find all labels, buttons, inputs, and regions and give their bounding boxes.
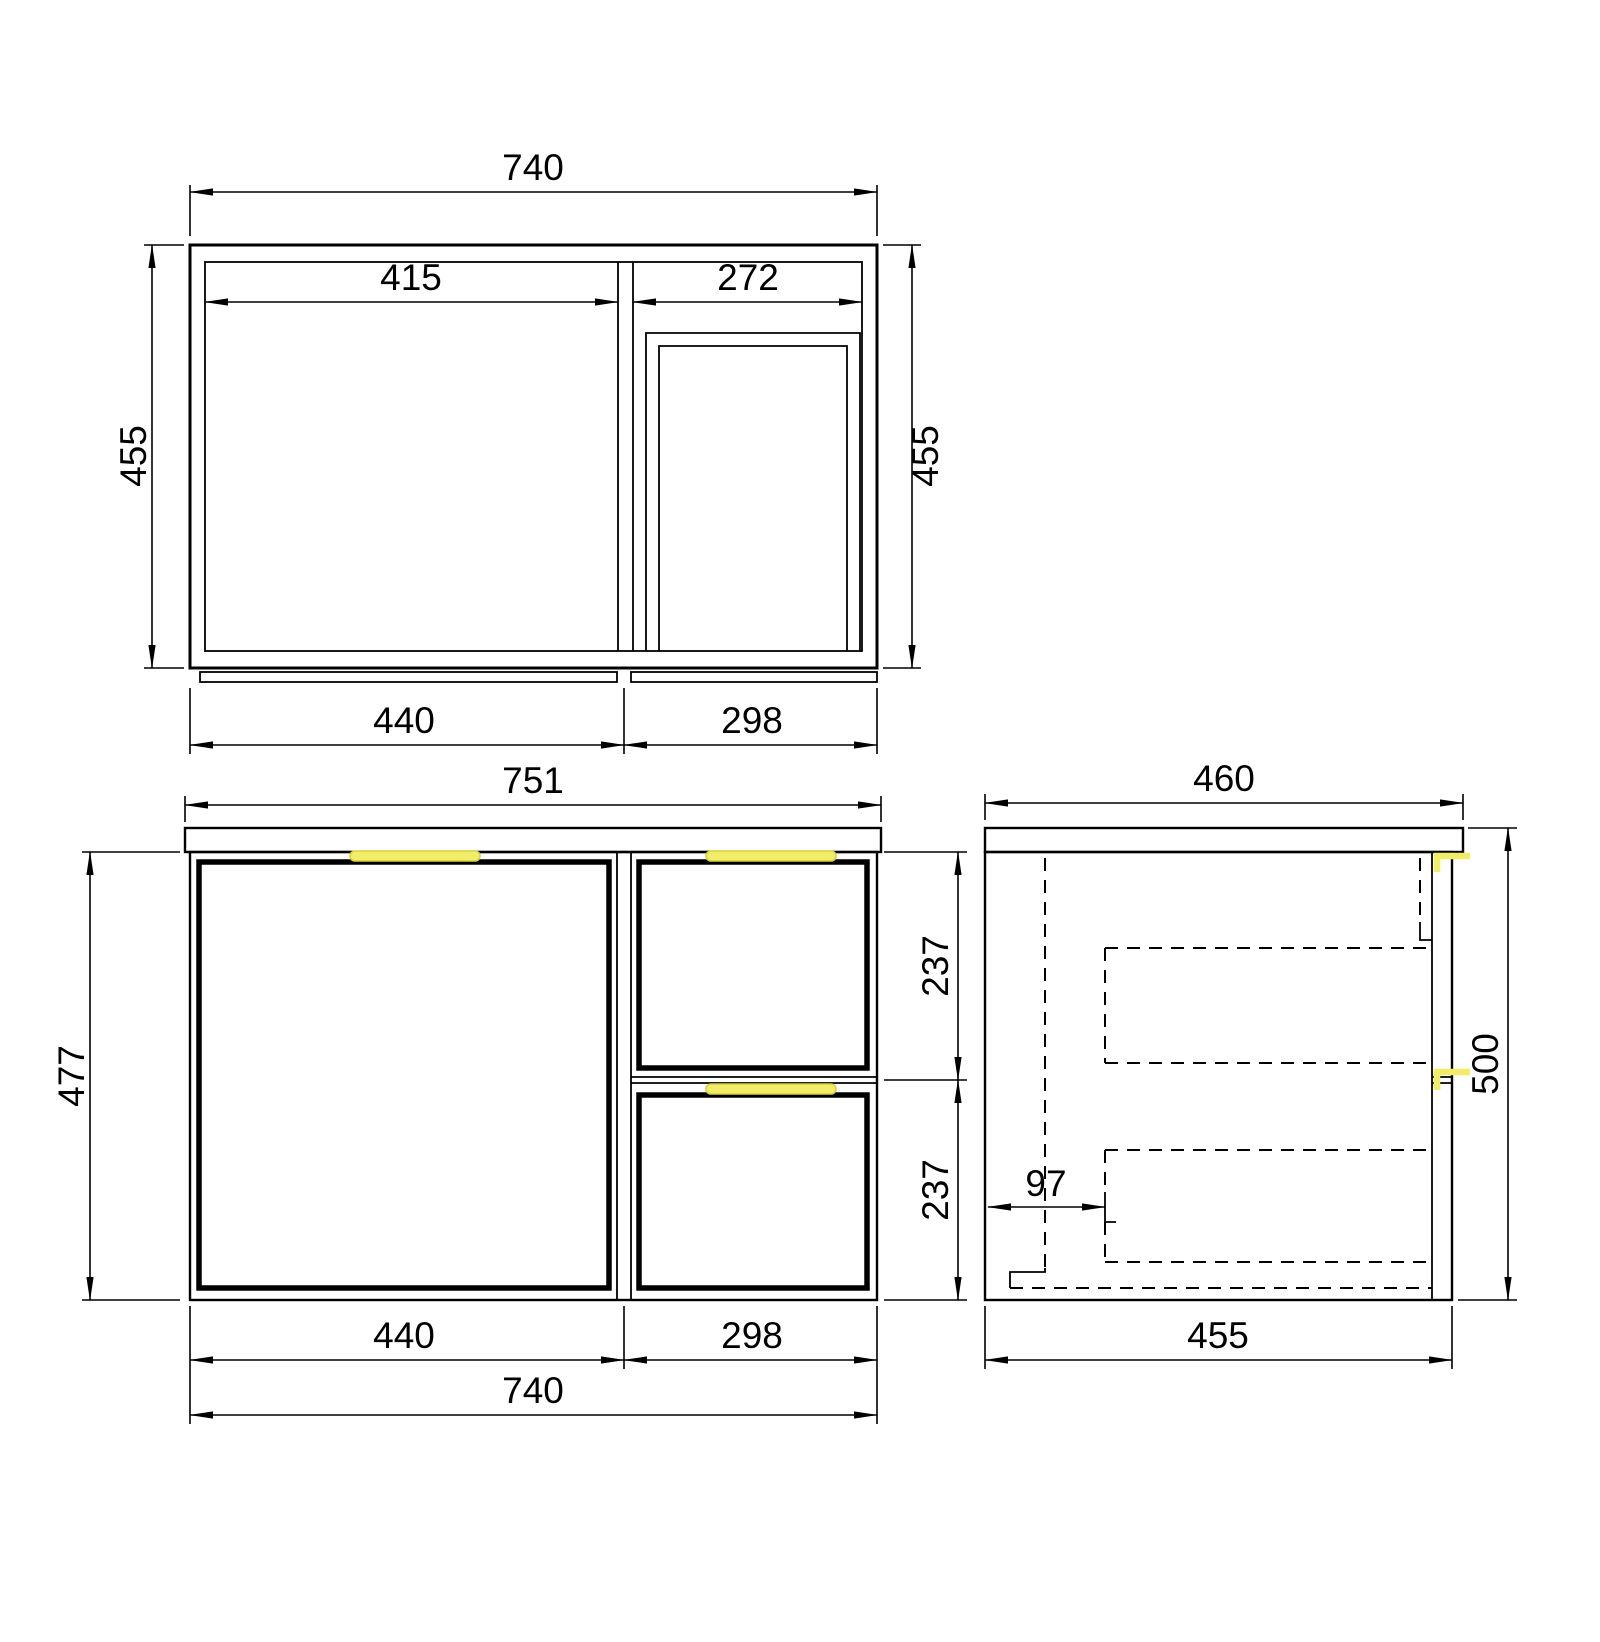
upper-drawer-box-lines [1105,948,1432,1063]
dim-label-lower: 237 [915,1159,956,1221]
lower-drawer-handle [706,1084,836,1094]
top-view-outline [190,245,877,668]
dim-label: 477 [51,1045,92,1107]
dim-label: 415 [380,257,442,298]
dim-ext-lines [884,852,967,1300]
dim-top-depth-right: 455 [883,245,946,668]
dim-front-drawer-heights: 237 237 [884,852,967,1300]
dim-top-overall-width: 740 [190,147,877,236]
dim-side-drawer-offset: 97 [988,1163,1105,1207]
door-front-edge-plan [200,672,617,682]
side-view: 460 500 97 [985,758,1517,1369]
dim-label: 455 [1187,1315,1249,1356]
dim-label: 455 [905,425,946,487]
back-panel-bottom-step [1010,1268,1045,1288]
dim-label-upper: 237 [915,935,956,997]
side-handle-top [1437,856,1470,872]
drawer-front-edge-plan [631,672,877,682]
dim-top-bottom-sections: 440 298 [190,688,877,754]
dim-side-countertop-depth: 460 [985,758,1463,820]
upper-drawer-box-hidden [1105,948,1432,1063]
drawer-front-lower [639,1095,867,1288]
dim-label: 500 [1465,1033,1506,1095]
countertop-side [985,828,1463,852]
dim-top-door-opening: 415 [205,257,618,302]
dim-label-overall-width: 740 [502,1370,564,1411]
cabinet-front-outline [190,852,877,1300]
dim-label: 460 [1193,758,1255,799]
drawer-box-outer [646,333,860,651]
lower-drawer-box-hidden [1105,1150,1432,1262]
dim-label: 272 [717,257,779,298]
top-view-inner-wall [205,262,862,651]
countertop-front [185,828,881,852]
dim-label: 740 [502,147,564,188]
top-view: 740 455 455 415 272 440 29 [113,147,946,754]
dim-label: 455 [113,425,154,487]
dim-top-depth-left: 455 [113,245,184,668]
dim-side-cabinet-depth: 455 [985,1306,1452,1369]
dim-side-overall-height: 500 [1458,828,1517,1300]
upper-drawer-handle [706,851,836,861]
dim-front-cabinet-height: 477 [51,852,180,1300]
dim-label-door-width: 440 [373,1315,435,1356]
dim-label: 751 [502,760,564,801]
dim-label-right: 298 [721,700,783,741]
door-panel [199,862,609,1288]
dim-top-drawer-opening: 272 [633,257,862,302]
dim-label: 97 [1025,1163,1066,1204]
door-handle [350,851,480,861]
dim-front-bottom-sections: 440 298 740 [190,1306,877,1424]
vanity-technical-drawing: 740 455 455 415 272 440 29 [0,0,1600,1642]
dim-label-left: 440 [373,700,435,741]
front-rail-step [1420,922,1432,940]
dim-label-drawer-width: 298 [721,1315,783,1356]
drawer-box-inner [659,346,847,651]
dim-ext-lines [82,852,180,1300]
drawer-front-upper [639,862,867,1068]
dim-front-countertop-width: 751 [185,760,881,822]
lower-drawer-box-step [1105,1192,1116,1222]
drawing-sheet: 740 455 455 415 272 440 29 [0,0,1600,1642]
front-view: 751 477 237 237 [51,760,967,1424]
cabinet-side-outline [985,852,1452,1300]
lower-drawer-box-lines [1105,1150,1432,1262]
